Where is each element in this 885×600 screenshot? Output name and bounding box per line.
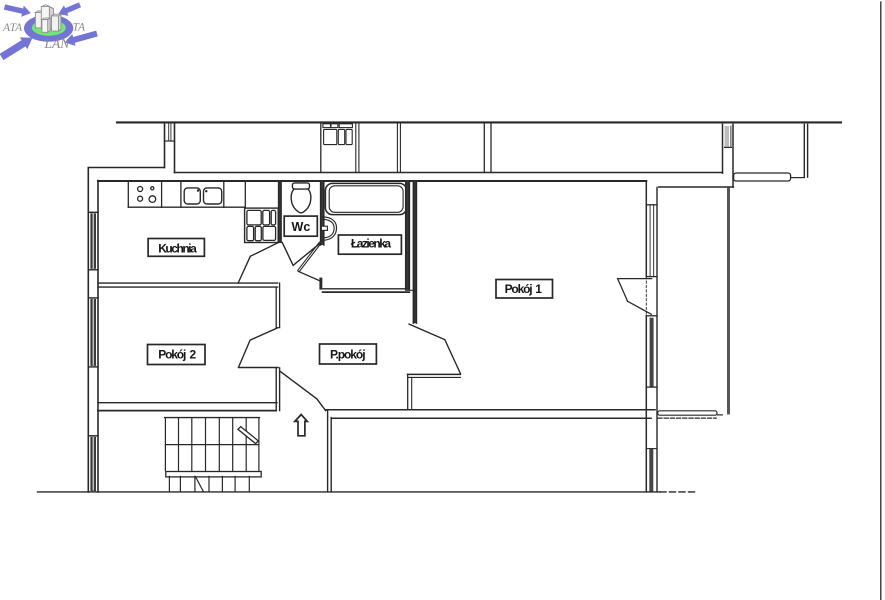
svg-text:2: 2 [189,348,196,362]
svg-text:TA: TA [73,22,87,34]
svg-text:1: 1 [535,282,542,296]
svg-text:Pokój: Pokój [505,282,533,296]
svg-text:ATA: ATA [2,22,23,34]
svg-text:Łazienka: Łazienka [351,237,392,251]
svg-text:LAN: LAN [44,36,71,51]
svg-text:Kuchnia: Kuchnia [158,241,197,255]
svg-text:P.pokój: P.pokój [330,347,366,361]
svg-text:Pokój: Pokój [158,348,186,362]
svg-text:Wc: Wc [292,220,311,234]
